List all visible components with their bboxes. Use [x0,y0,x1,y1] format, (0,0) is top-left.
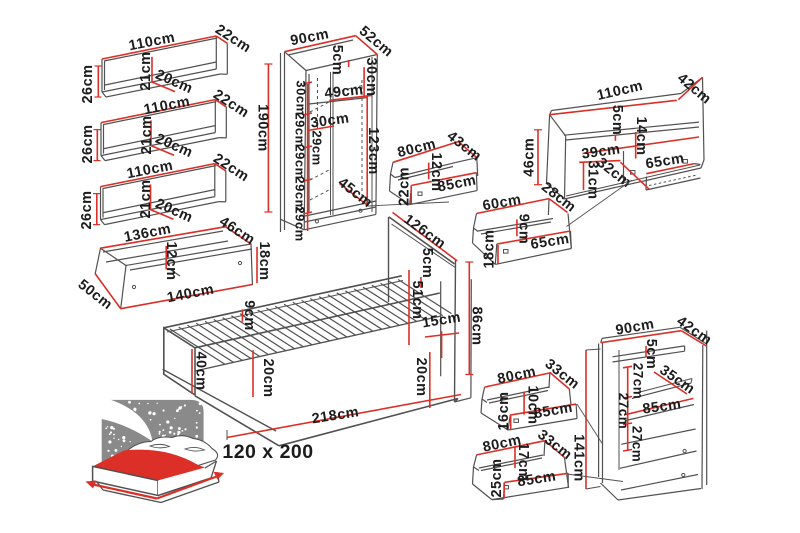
svg-text:22cm: 22cm [397,167,413,206]
svg-text:27cm: 27cm [631,363,646,400]
svg-text:14cm: 14cm [633,116,649,155]
svg-text:5cm: 5cm [609,105,625,136]
svg-text:123cm: 123cm [365,127,381,175]
svg-text:16cm: 16cm [496,391,512,430]
svg-text:20cm: 20cm [413,357,429,396]
svg-text:29cm: 29cm [310,130,325,165]
svg-text:27cm: 27cm [630,426,645,463]
svg-text:27cm: 27cm [616,393,631,430]
svg-text:30cm: 30cm [294,80,309,115]
svg-text:12cm: 12cm [163,241,179,280]
svg-text:21cm: 21cm [138,179,154,218]
svg-text:18cm: 18cm [482,229,498,268]
svg-text:30cm: 30cm [363,57,379,96]
svg-text:29cm: 29cm [293,144,308,179]
svg-text:29cm: 29cm [293,112,308,147]
svg-text:5cm: 5cm [329,45,345,76]
svg-text:51cm: 51cm [409,280,425,319]
svg-text:190cm: 190cm [255,104,271,152]
svg-text:21cm: 21cm [139,115,155,154]
svg-text:46cm: 46cm [522,138,538,177]
svg-text:20cm: 20cm [260,358,276,397]
svg-text:26cm: 26cm [80,64,96,103]
svg-text:21cm: 21cm [138,51,154,90]
svg-text:29cm: 29cm [293,206,308,241]
svg-text:5cm: 5cm [419,248,435,279]
svg-text:18cm: 18cm [256,241,272,280]
svg-text:40cm: 40cm [193,351,209,390]
svg-text:26cm: 26cm [79,190,95,229]
svg-text:26cm: 26cm [80,124,96,163]
svg-text:9cm: 9cm [241,300,257,331]
svg-text:120 x 200: 120 x 200 [222,441,313,463]
svg-text:86cm: 86cm [469,306,485,345]
svg-text:25cm: 25cm [489,458,505,497]
